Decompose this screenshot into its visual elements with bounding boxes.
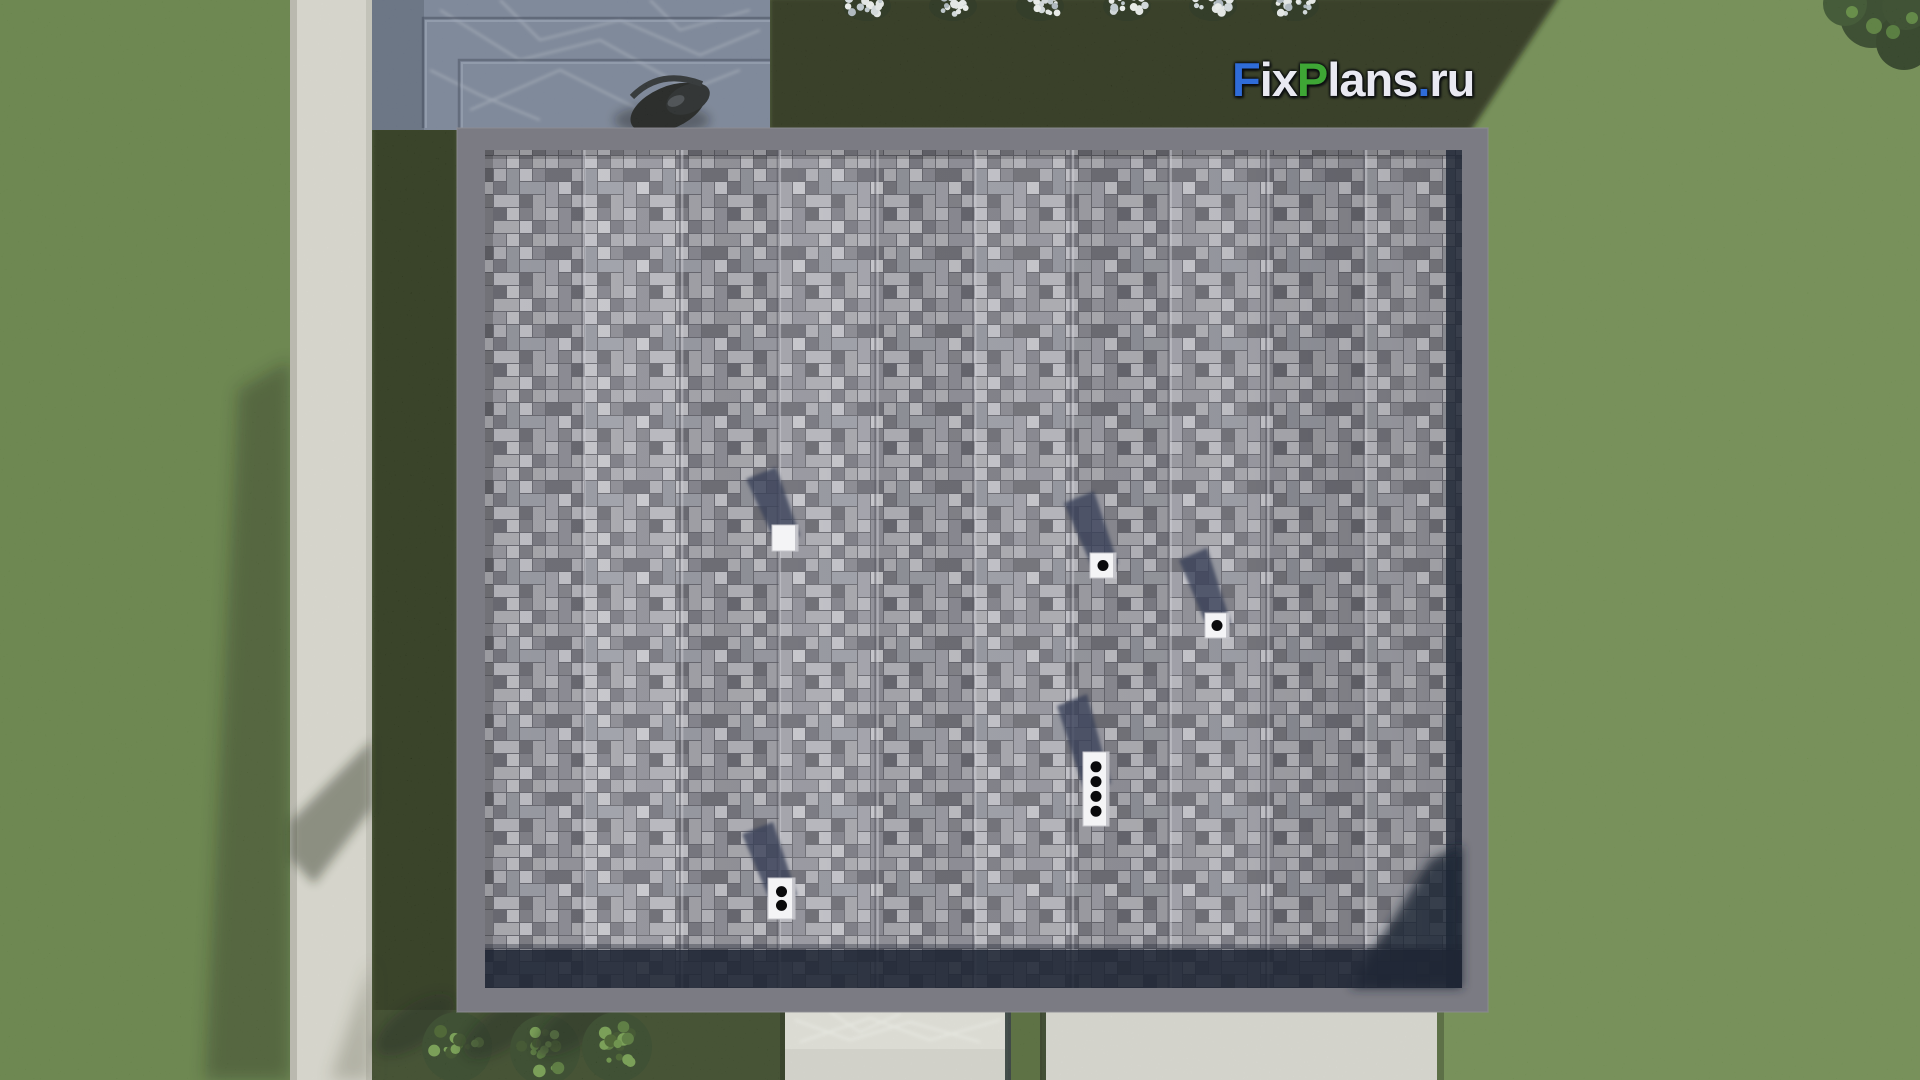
vent-hole bbox=[1212, 620, 1223, 631]
vent-hole bbox=[776, 900, 787, 911]
roof-ridge-seam-highlight bbox=[583, 150, 586, 988]
roof-ridge-seam bbox=[1265, 150, 1267, 988]
roof-ridge-seam bbox=[679, 150, 681, 988]
roof-ridge-seam-highlight bbox=[681, 150, 684, 988]
roof-ridge-seam-highlight bbox=[1072, 150, 1075, 988]
roof-ridge-seam bbox=[1070, 150, 1072, 988]
roof-ridge-seam bbox=[581, 150, 583, 988]
roof-ridge-seam bbox=[874, 150, 876, 988]
roof-dark-eave-bottom bbox=[485, 950, 1462, 988]
roof-ridge-seam-highlight bbox=[1365, 150, 1368, 988]
vent-hole bbox=[776, 886, 787, 897]
watermark-logo-part: ru bbox=[1429, 52, 1474, 107]
roof bbox=[457, 128, 1488, 1012]
watermark-logo-part: ix bbox=[1260, 52, 1297, 107]
roof-column-tint bbox=[485, 150, 583, 988]
roof-ridge-seam-highlight bbox=[1169, 150, 1172, 988]
watermark-logo-part: . bbox=[1417, 52, 1429, 107]
roof-ridge-seam bbox=[1167, 150, 1169, 988]
vent-box bbox=[768, 878, 795, 919]
vent-hole bbox=[1091, 761, 1102, 772]
roof-column-tint bbox=[1071, 150, 1169, 988]
roof-ridge-seam bbox=[972, 150, 974, 988]
vent-hole bbox=[1098, 560, 1109, 571]
vent-box bbox=[772, 525, 798, 551]
roof-column-tint bbox=[778, 150, 876, 988]
roof-ridge-seam-highlight bbox=[1267, 150, 1270, 988]
vent-hole bbox=[1091, 806, 1102, 817]
roof-column-tint bbox=[974, 150, 1072, 988]
scene-svg bbox=[0, 0, 1920, 1080]
watermark-logo: FixPlans.ru bbox=[1232, 52, 1474, 107]
roof-ridge-seam bbox=[1363, 150, 1365, 988]
roof-column-tint bbox=[583, 150, 681, 988]
watermark-logo-part: P bbox=[1297, 52, 1327, 107]
vent-hole bbox=[1091, 776, 1102, 787]
render-canvas: FixPlans.ru bbox=[0, 0, 1920, 1080]
watermark-logo-part: lans bbox=[1327, 52, 1417, 107]
roof-ridge-seam-highlight bbox=[974, 150, 977, 988]
vent-hole bbox=[1091, 791, 1102, 802]
roof-column-tint bbox=[876, 150, 974, 988]
roof-column-tint bbox=[1267, 150, 1365, 988]
roof-ridge-seam-highlight bbox=[876, 150, 879, 988]
watermark-logo-part: F bbox=[1232, 52, 1260, 107]
